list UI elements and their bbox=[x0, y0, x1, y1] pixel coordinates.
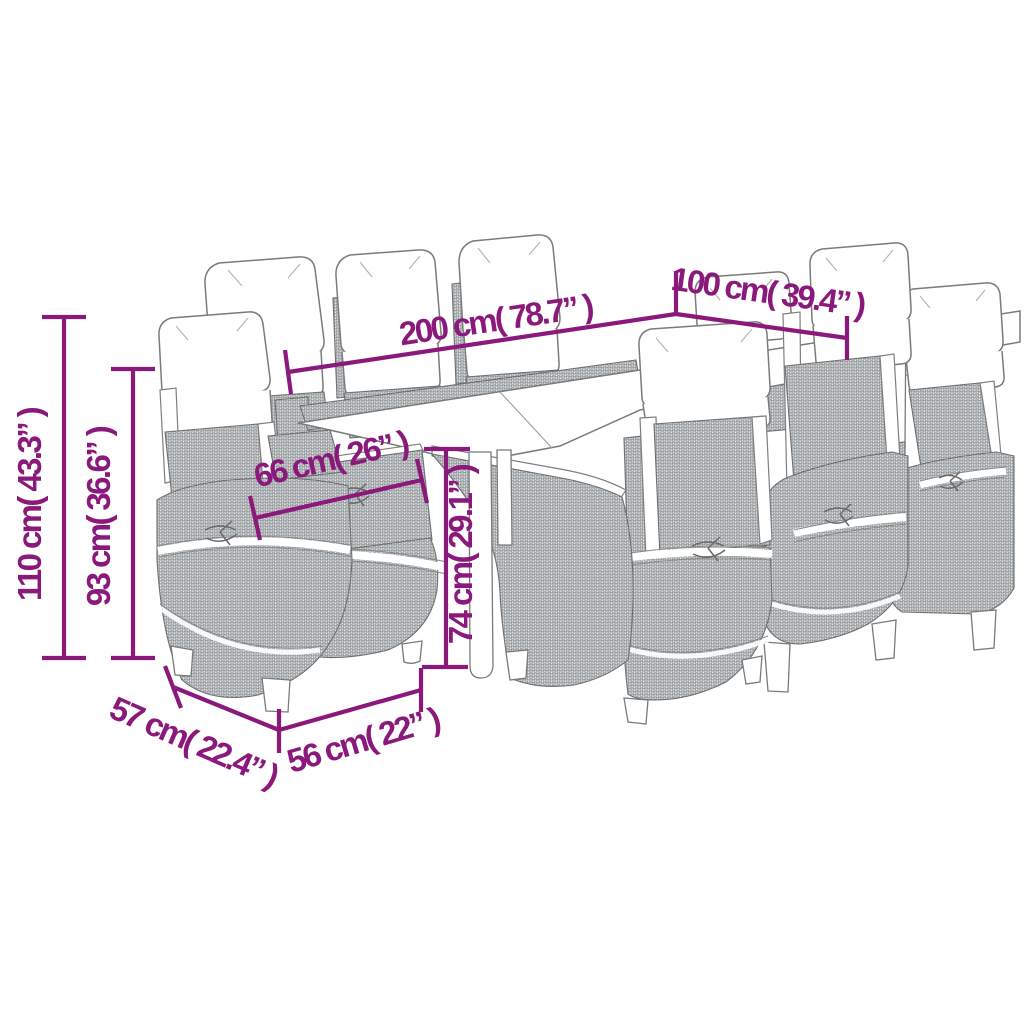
svg-text:93 cm( 36.6” ): 93 cm( 36.6” ) bbox=[80, 426, 117, 606]
svg-text:74 cm( 29.1” ): 74 cm( 29.1” ) bbox=[442, 464, 479, 644]
svg-text:110 cm( 43.3” ): 110 cm( 43.3” ) bbox=[11, 407, 48, 601]
